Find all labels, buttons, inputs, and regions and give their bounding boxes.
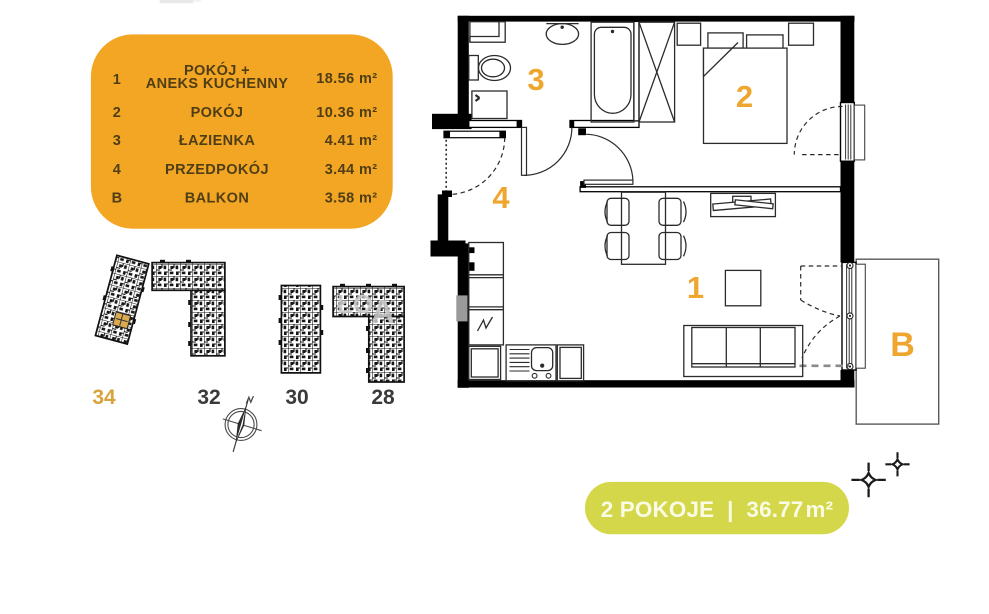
- svg-text:3.44 m²: 3.44 m²: [325, 162, 378, 178]
- svg-text:2: 2: [736, 79, 753, 114]
- svg-text:30: 30: [285, 386, 308, 409]
- svg-text:4.41 m²: 4.41 m²: [325, 133, 378, 149]
- svg-text:1: 1: [113, 72, 121, 88]
- svg-text:ŁAZIENKA: ŁAZIENKA: [179, 133, 256, 149]
- svg-text:28: 28: [371, 386, 395, 409]
- svg-text:10.36 m²: 10.36 m²: [316, 105, 377, 121]
- svg-text:4: 4: [492, 180, 510, 215]
- svg-text:ANEKS KUCHENNY: ANEKS KUCHENNY: [146, 76, 289, 92]
- svg-text:BALKON: BALKON: [185, 191, 249, 207]
- svg-text:ŁO: ŁO: [337, 289, 373, 319]
- svg-text:32: 32: [197, 386, 220, 409]
- svg-text:3.58 m²: 3.58 m²: [325, 191, 378, 207]
- svg-text:A: A: [371, 293, 395, 330]
- svg-text:3: 3: [527, 62, 544, 97]
- svg-text:2 POKOJE | 36.77 m²: 2 POKOJE | 36.77 m²: [601, 497, 834, 522]
- svg-text:4: 4: [113, 162, 121, 178]
- svg-text:B: B: [890, 326, 915, 364]
- svg-text:POKÓJ: POKÓJ: [191, 103, 244, 121]
- svg-text:34: 34: [92, 386, 116, 409]
- svg-text:18.56 m²: 18.56 m²: [316, 71, 377, 87]
- svg-text:PRZEDPOKÓJ: PRZEDPOKÓJ: [165, 160, 269, 178]
- svg-text:2: 2: [113, 105, 121, 121]
- svg-text:B: B: [112, 191, 123, 207]
- svg-text:3: 3: [113, 133, 121, 149]
- svg-text:1: 1: [687, 270, 704, 305]
